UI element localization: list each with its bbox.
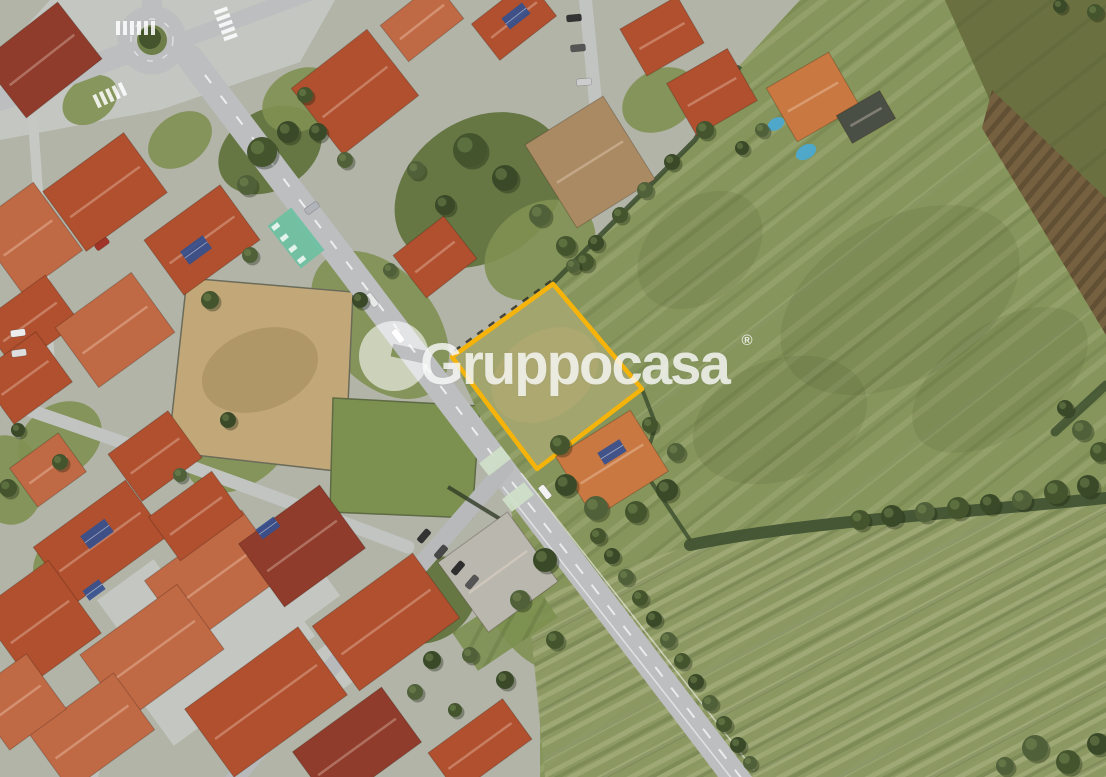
- satellite-map: Gruppocasa ®: [0, 0, 1106, 777]
- car: [576, 78, 592, 86]
- car: [566, 14, 582, 22]
- satellite-scene: [0, 0, 1106, 777]
- car: [570, 44, 586, 52]
